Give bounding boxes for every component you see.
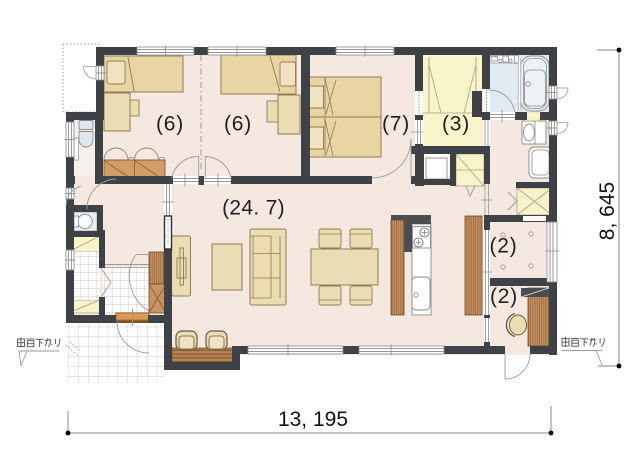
svg-text:(7): (7) — [382, 113, 410, 136]
svg-text:13, 195: 13, 195 — [278, 408, 348, 431]
svg-text:8, 645: 8, 645 — [596, 182, 619, 240]
svg-text:(2): (2) — [489, 235, 517, 258]
svg-text:(6): (6) — [156, 113, 184, 136]
svg-text:(2): (2) — [490, 285, 518, 308]
svg-text:(6): (6) — [224, 113, 252, 136]
svg-text:(3): (3) — [442, 113, 470, 136]
svg-text:(24. 7): (24. 7) — [222, 197, 285, 220]
